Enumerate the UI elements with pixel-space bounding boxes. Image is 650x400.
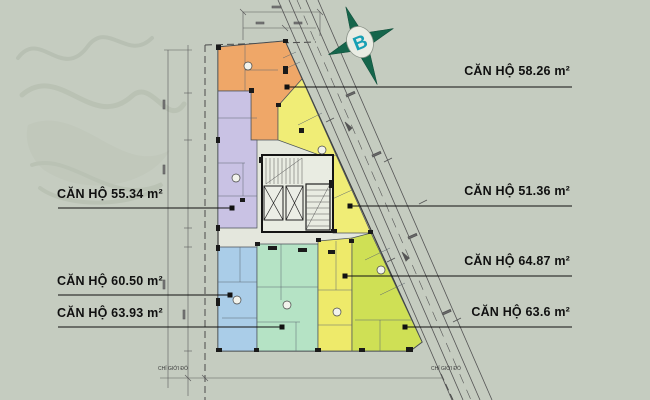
floorplan-page: B CĂN HỘ 58.26 m² CĂN HỘ 55.34 m² CĂN HỘ… [0,0,650,400]
unit-label-55-34: CĂN HỘ 55.34 m² [57,187,163,201]
unit-label-51-36: CĂN HỘ 51.36 m² [464,184,570,198]
unit-region-55-34 [218,91,257,228]
unit-label-60-50: CĂN HỘ 60.50 m² [57,274,163,288]
boundary-label-right: CHỈ GIỚI ĐỎ [431,366,461,372]
watermark-scribble [18,37,184,202]
unit-label-63-6: CĂN HỘ 63.6 m² [471,305,570,319]
core-stairs-elevators [262,155,333,232]
unit-label-58-26: CĂN HỘ 58.26 m² [464,64,570,78]
boundary-label-left: CHỈ GIỚI ĐỎ [158,366,188,372]
unit-region-63-93 [257,244,318,351]
unit-region-64-87 [318,238,352,351]
unit-label-64-87: CĂN HỘ 64.87 m² [464,254,570,268]
compass: B [314,0,410,97]
unit-label-63-93: CĂN HỘ 63.93 m² [57,306,163,320]
